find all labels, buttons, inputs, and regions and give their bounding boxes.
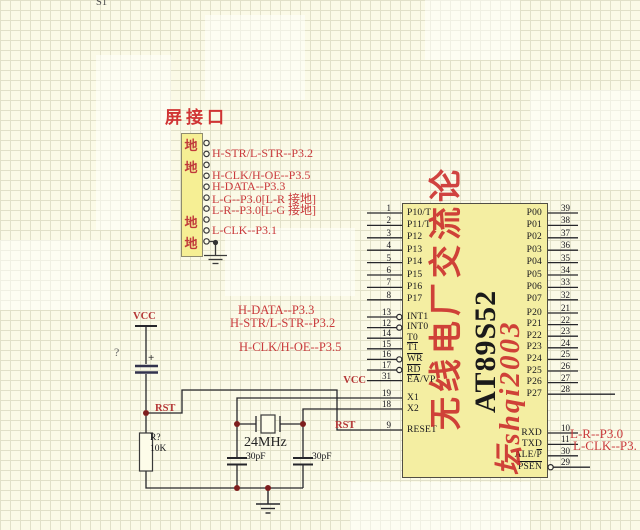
pin-label: P12 [407,232,422,243]
pin-number: 9 [367,420,391,430]
pin-number: 37 [561,228,570,238]
connector-ground-label: 地 [181,135,201,154]
pin-number: 19 [367,388,391,398]
resistor-value-label: 10K [150,444,166,454]
pin-number: 35 [561,253,570,263]
pin-label: X2 [407,404,419,415]
vcc-pin-label: VCC [340,375,366,386]
pin-label: INT0 [407,322,428,333]
pin-number: 11 [561,434,570,444]
pin-label: P05 [482,270,542,281]
pin-number: 27 [561,373,570,383]
vcc-label: VCC [133,311,156,322]
pin-number: 5 [367,253,391,263]
pin-number: 24 [561,338,570,348]
pin-number: 29 [561,457,570,467]
pin-number: 15 [367,339,391,349]
crystal-body [261,415,275,433]
overlined-pin-text: WR [407,354,423,364]
connector-title: 屏接口 [165,103,228,128]
connector-pin-circle [204,140,209,145]
connector-pin-circle [204,173,209,178]
connector-ground-label: 地 [181,157,201,176]
pin-label: P00 [482,208,542,219]
rst-pin-label: RST [335,420,355,431]
connector-pin-circle [204,151,209,156]
unknown-ref-label: ? [114,345,119,360]
wire-layer [0,0,640,530]
pin-number: 10 [561,423,570,433]
pin-label: P15 [407,270,422,281]
pin-label: X1 [407,393,419,404]
overlined-pin-text: EA [407,375,420,385]
connector-ground-label: 地 [181,212,201,231]
sheet-ref-label: S1 [96,0,107,8]
electrolytic-capacitor [135,366,158,373]
pin-label: T1 [407,343,418,354]
pin-number: 28 [561,384,570,394]
load-capacitor-plates [227,458,313,465]
overlined-pin-text: P [537,450,542,460]
crystal-value-label: 24MHz [244,435,287,451]
capacitor-plus-sign: + [148,352,154,364]
pin-number: 2 [367,215,391,225]
pin-label: INT1 [407,312,428,323]
pin-number: 8 [367,290,391,300]
pin-number: 6 [367,265,391,275]
watermark-signature: 坛shqi2003 [490,291,530,505]
cap1-value-label: 30pF [246,452,266,462]
pin-number: 32 [561,290,570,300]
connector-pin-circle [204,162,209,167]
pin-number: 39 [561,203,570,213]
pin-number: 26 [561,361,570,371]
pin-number: 3 [367,228,391,238]
pin-label: P17 [407,294,422,305]
pin-number: 33 [561,277,570,287]
pin-number: 14 [367,328,391,338]
overlined-pin-text: T1 [407,343,418,353]
connector-pin-circle [204,239,209,244]
pin-label: P02 [482,232,542,243]
pin-label: WR [407,354,423,365]
pin-number: 25 [561,349,570,359]
pin-number: 38 [561,215,570,225]
pin-number: 31 [367,371,391,381]
pin-number: 1 [367,203,391,213]
net-label-hclk: H-CLK/H-OE--P3.5 [239,340,341,355]
pin-number: 7 [367,277,391,287]
watermark-text: 无线电厂交流论 [427,170,467,430]
overlined-pin-text: RD [407,365,421,375]
junction-dots [143,240,306,491]
net-label-hstr: H-STR/L-STR--P3.2 [230,316,335,331]
pin-number: 18 [367,399,391,409]
resistor-ref-label: R? [150,433,161,443]
pin-label: P03 [482,245,542,256]
connector-ground-label: 地 [181,233,201,252]
pin-bubble [397,357,402,362]
pin-bubble [397,314,402,319]
connector-pin-circle [204,206,209,211]
pin-number: 30 [561,446,570,456]
pin-number: 17 [367,360,391,370]
pin-bubble [397,325,402,330]
pin-number: 16 [367,349,391,359]
pin-number: 36 [561,240,570,250]
connector-pin-circle [204,184,209,189]
net-label-lclk: L-CLK--P3. [573,438,637,454]
cap2-value-label: 30pF [312,452,332,462]
connector-pin-label: L-CLK--P3.1 [212,223,277,238]
pin-number: 4 [367,240,391,250]
schematic-canvas: S1 屏接口 H-DATA--P3.3 H-STR/L-STR--P3.2 H-… [0,0,640,530]
pin-number: 22 [561,315,570,325]
pin-label: P14 [407,257,422,268]
pin-label: P04 [482,257,542,268]
ground-symbol-main [256,488,280,513]
pin-number: 13 [367,307,391,317]
rst-node-label: RST [155,403,175,414]
connector-pin-label: L-R--P3.0[L-G 接地] [212,201,316,218]
pin-number: 34 [561,265,570,275]
pin-label: RD [407,365,421,376]
pin-bubble [548,465,553,470]
connector-pin-circle [204,228,209,233]
pin-label: P13 [407,245,422,256]
pin-number: 21 [561,303,570,313]
pin-number: 12 [367,318,391,328]
pin-label: P16 [407,282,422,293]
connector-pin-label: H-STR/L-STR--P3.2 [212,146,313,161]
pin-number: 23 [561,326,570,336]
pin-label: P01 [482,220,542,231]
pin-bubble [397,367,402,372]
connector-pin-circle [204,217,209,222]
connector-pin-circle [204,195,209,200]
